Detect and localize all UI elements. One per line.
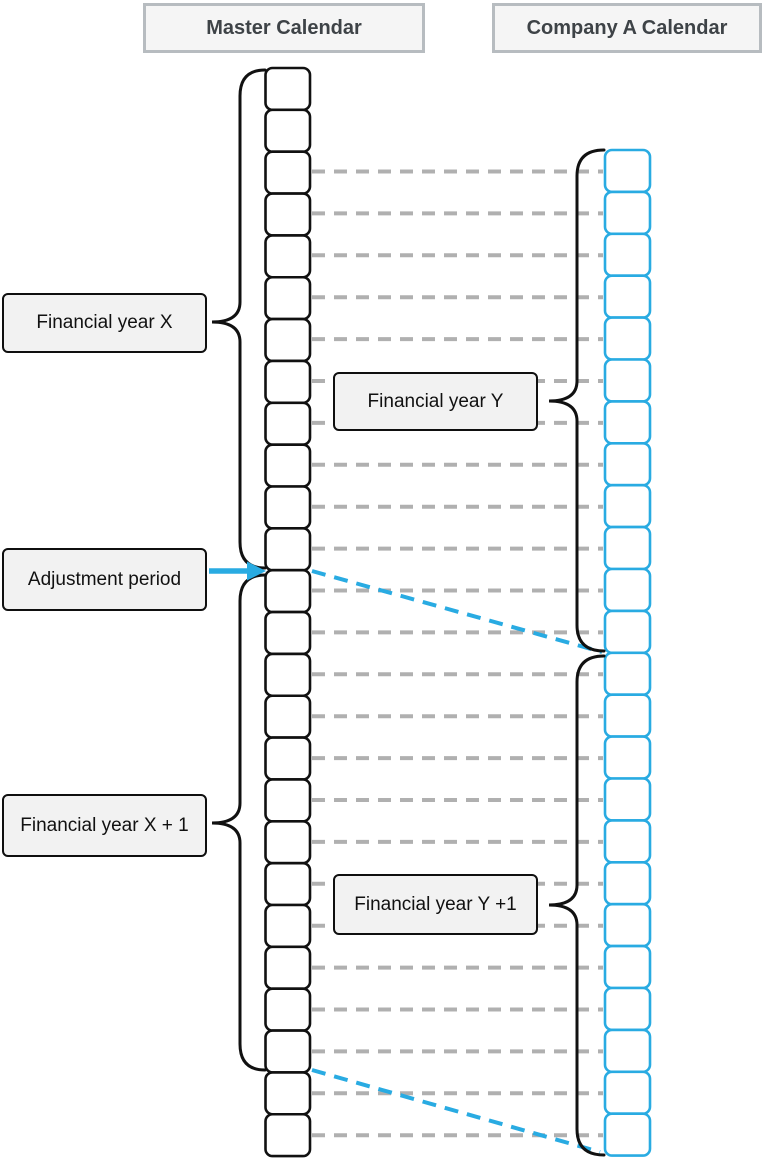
- master-calendar-cell: [266, 1031, 311, 1073]
- label-adjustment-period: Adjustment period: [2, 548, 207, 611]
- company-calendar-cell: [605, 653, 650, 695]
- adjustment-shift-line: [312, 1070, 600, 1152]
- master-calendar-cell: [266, 821, 311, 863]
- company-calendar-cell: [605, 862, 650, 904]
- company-calendar-cell: [605, 1072, 650, 1114]
- company-calendar-cell: [605, 611, 650, 653]
- master-calendar-cell: [266, 570, 311, 612]
- company-calendar-cell: [605, 443, 650, 485]
- master-calendar-cell: [266, 194, 311, 236]
- master-calendar-cell: [266, 152, 311, 194]
- brace-financial-year-y: [549, 150, 604, 651]
- company-calendar-cell: [605, 527, 650, 569]
- master-calendar-cell: [266, 738, 311, 780]
- calendar-mapping-diagram: Master Calendar Company A Calendar Finan…: [0, 0, 765, 1159]
- master-calendar-cell: [266, 1114, 311, 1156]
- company-calendar-cell: [605, 1030, 650, 1072]
- company-calendar-cell: [605, 988, 650, 1030]
- company-calendar-cell: [605, 695, 650, 737]
- brace-financial-year-x-plus-1: [212, 575, 265, 1070]
- adjustment-shift-line: [312, 571, 602, 652]
- master-calendar-title: Master Calendar: [143, 3, 425, 53]
- master-calendar-cell: [266, 863, 311, 905]
- master-calendar-cell: [266, 696, 311, 738]
- master-calendar-cell: [266, 403, 311, 445]
- company-calendar-cell: [605, 569, 650, 611]
- company-calendar-cell: [605, 946, 650, 988]
- label-financial-year-x: Financial year X: [2, 293, 207, 353]
- master-calendar-cell: [266, 110, 311, 152]
- label-financial-year-y: Financial year Y: [333, 372, 538, 431]
- master-calendar-cell: [266, 612, 311, 654]
- company-calendar-cell: [605, 737, 650, 779]
- label-financial-year-x-text: Financial year X: [36, 312, 172, 334]
- master-calendar-cell: [266, 779, 311, 821]
- master-calendar-cell: [266, 905, 311, 947]
- master-calendar-cell: [266, 1072, 311, 1114]
- master-calendar-cell: [266, 654, 311, 696]
- adjustment-arrow-head: [247, 562, 266, 581]
- company-calendar-cell: [605, 904, 650, 946]
- company-calendar-cell: [605, 150, 650, 192]
- label-adjustment-period-text: Adjustment period: [28, 569, 181, 591]
- company-calendar-cell: [605, 234, 650, 276]
- company-calendar-title: Company A Calendar: [492, 3, 762, 53]
- company-calendar-cell: [605, 485, 650, 527]
- master-calendar-cell: [266, 277, 311, 319]
- company-calendar-cell: [605, 820, 650, 862]
- brace-financial-year-y-plus-1: [549, 656, 604, 1155]
- label-financial-year-y-text: Financial year Y: [368, 391, 504, 413]
- master-calendar-cell: [266, 235, 311, 277]
- master-calendar-cell: [266, 487, 311, 529]
- company-calendar-cell: [605, 779, 650, 821]
- master-calendar-title-text: Master Calendar: [206, 17, 362, 40]
- label-financial-year-x-plus-1-text: Financial year X + 1: [20, 815, 188, 837]
- master-calendar-cell: [266, 445, 311, 487]
- company-calendar-cell: [605, 318, 650, 360]
- company-calendar-cell: [605, 360, 650, 402]
- master-calendar-cell: [266, 989, 311, 1031]
- company-calendar-cell: [605, 276, 650, 318]
- master-calendar-cell: [266, 947, 311, 989]
- company-calendar-cell: [605, 401, 650, 443]
- master-calendar-cell: [266, 361, 311, 403]
- brace-financial-year-x: [212, 70, 265, 568]
- company-calendar-title-text: Company A Calendar: [527, 17, 728, 40]
- company-calendar-cell: [605, 1114, 650, 1156]
- label-financial-year-y-plus-1-text: Financial year Y +1: [354, 894, 516, 916]
- master-calendar-cell: [266, 68, 311, 110]
- label-financial-year-x-plus-1: Financial year X + 1: [2, 794, 207, 857]
- label-financial-year-y-plus-1: Financial year Y +1: [333, 874, 538, 935]
- master-calendar-cell: [266, 319, 311, 361]
- master-calendar-cell: [266, 528, 311, 570]
- company-calendar-cell: [605, 192, 650, 234]
